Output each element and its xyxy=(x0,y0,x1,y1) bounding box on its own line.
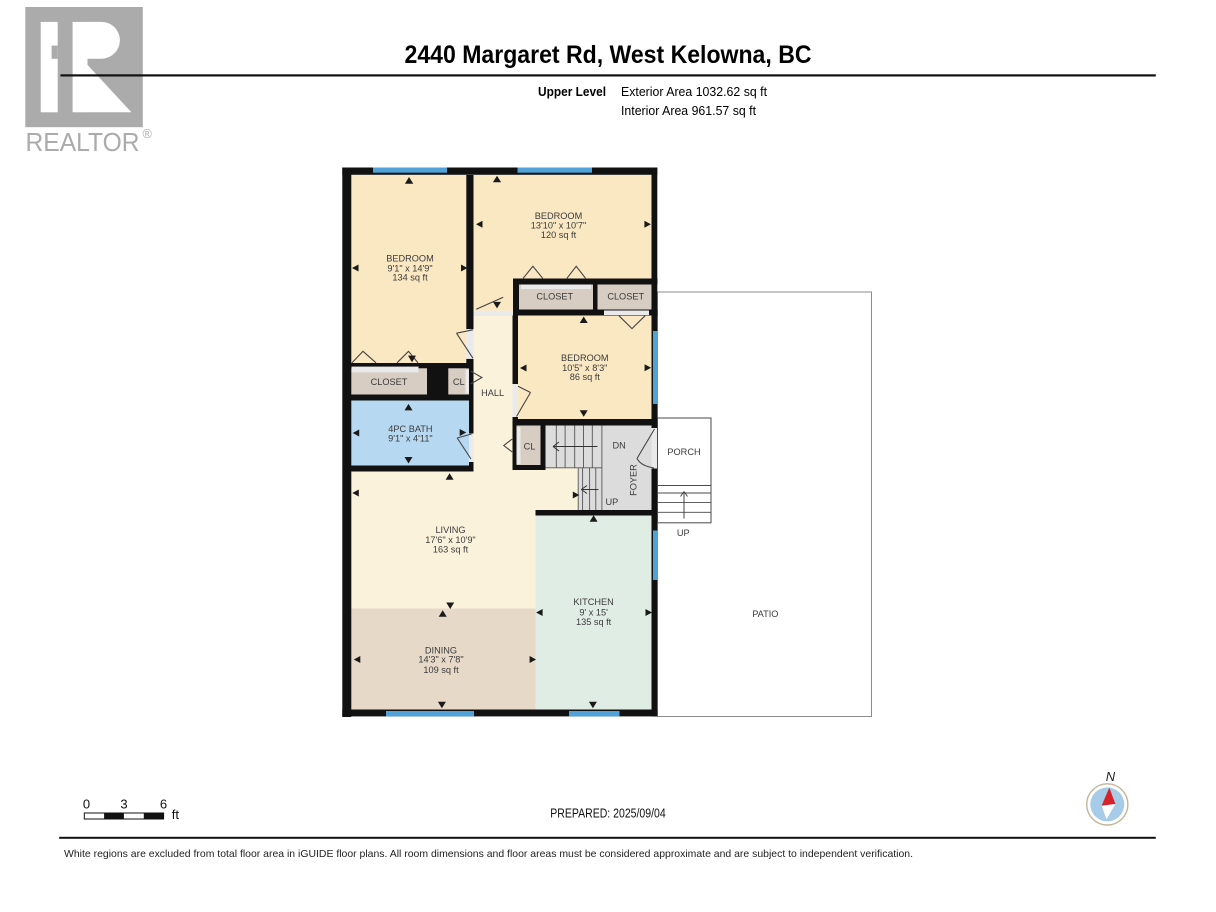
svg-text:17'6" x 10'9": 17'6" x 10'9" xyxy=(425,535,475,545)
svg-text:PORCH: PORCH xyxy=(667,447,700,457)
svg-text:KITCHEN: KITCHEN xyxy=(573,597,613,607)
svg-text:LIVING: LIVING xyxy=(435,525,465,535)
svg-text:14'3" x 7'8": 14'3" x 7'8" xyxy=(418,655,463,665)
svg-text:REALTOR: REALTOR xyxy=(26,129,140,157)
svg-text:2440 Margaret Rd, West Kelowna: 2440 Margaret Rd, West Kelowna, BC xyxy=(405,41,812,69)
svg-text:BEDROOM: BEDROOM xyxy=(386,254,433,264)
svg-text:CLOSET: CLOSET xyxy=(536,292,573,302)
svg-text:CLOSET: CLOSET xyxy=(607,292,644,302)
svg-text:N: N xyxy=(1106,769,1116,784)
svg-text:0: 0 xyxy=(83,797,90,812)
svg-text:PREPARED: 2025/09/04: PREPARED: 2025/09/04 xyxy=(550,807,666,821)
svg-text:9'1" x 4'11": 9'1" x 4'11" xyxy=(388,434,433,444)
svg-text:PATIO: PATIO xyxy=(752,609,778,619)
svg-text:120 sq ft: 120 sq ft xyxy=(541,230,577,240)
svg-text:Interior Area 961.57 sq ft: Interior Area 961.57 sq ft xyxy=(621,104,757,118)
svg-text:FOYER: FOYER xyxy=(629,464,639,496)
svg-text:Upper Level: Upper Level xyxy=(538,85,606,99)
svg-text:CLOSET: CLOSET xyxy=(371,377,408,387)
svg-text:3: 3 xyxy=(120,797,127,812)
svg-text:UP: UP xyxy=(677,528,690,538)
svg-text:BEDROOM: BEDROOM xyxy=(561,353,608,363)
svg-text:109 sq ft: 109 sq ft xyxy=(423,665,459,675)
svg-text:ft: ft xyxy=(172,807,180,822)
svg-text:UP: UP xyxy=(606,497,619,507)
svg-text:134 sq ft: 134 sq ft xyxy=(392,273,428,283)
svg-text:13'10" x 10'7": 13'10" x 10'7" xyxy=(531,220,587,230)
svg-text:White regions are excluded fro: White regions are excluded from total fl… xyxy=(64,849,913,860)
svg-text:®: ® xyxy=(143,127,153,141)
svg-text:4PC BATH: 4PC BATH xyxy=(388,424,432,434)
svg-text:CL: CL xyxy=(453,377,465,387)
svg-text:Exterior Area 1032.62 sq ft: Exterior Area 1032.62 sq ft xyxy=(621,85,768,99)
svg-text:HALL: HALL xyxy=(481,388,504,398)
svg-text:CL: CL xyxy=(524,442,536,452)
svg-text:135 sq ft: 135 sq ft xyxy=(576,617,612,627)
svg-text:DN: DN xyxy=(613,441,626,451)
svg-text:163 sq ft: 163 sq ft xyxy=(433,544,469,554)
svg-text:6: 6 xyxy=(160,797,167,812)
svg-text:86 sq ft: 86 sq ft xyxy=(570,372,601,382)
